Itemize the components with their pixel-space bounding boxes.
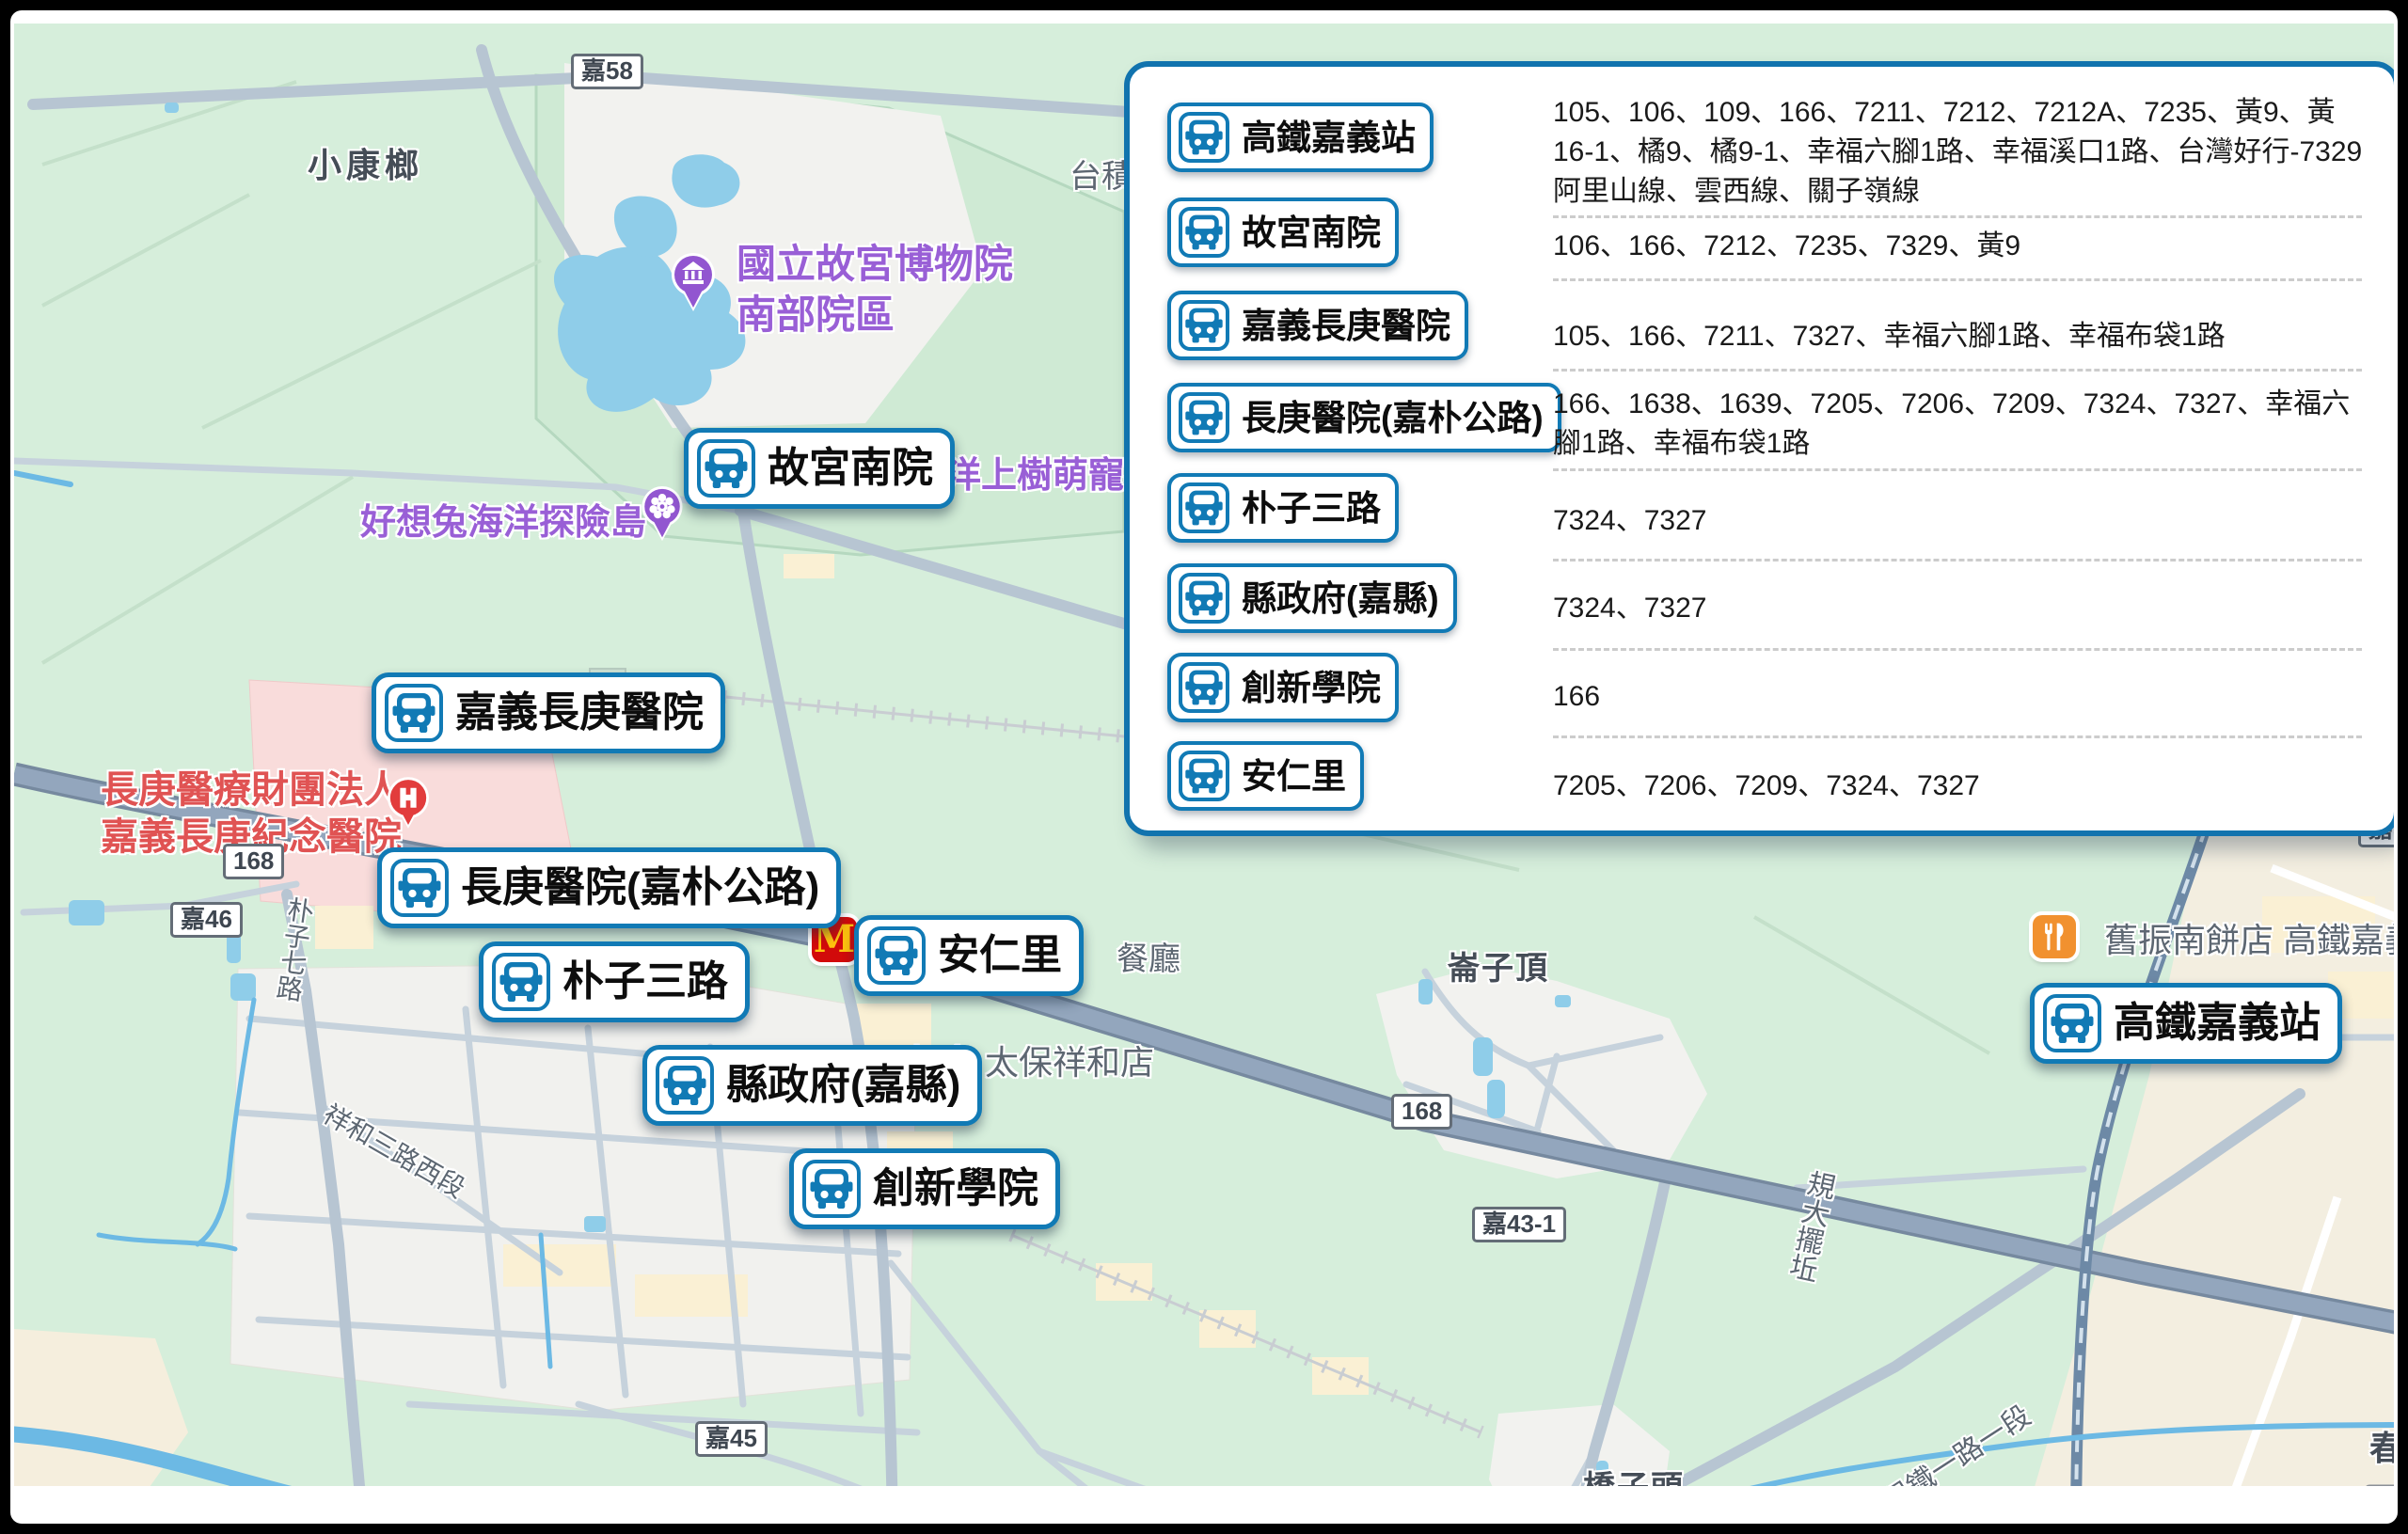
bus-icon — [656, 1056, 714, 1115]
locality-qiaozitou: 橋子頭 — [1583, 1468, 1685, 1486]
marker-label: 長庚醫院(嘉朴公路) — [461, 867, 819, 909]
map-marker-county-govt[interactable]: 縣政府(嘉縣) — [642, 1045, 982, 1126]
restaurant-icon[interactable] — [2033, 915, 2076, 958]
panel-routes-county-govt: 7324、7327 — [1553, 589, 2367, 628]
bus-icon — [390, 859, 449, 917]
panel-routes-anren-li: 7205、7206、7209、7324、7327 — [1553, 767, 2367, 806]
panel-routes-gugong: 106、166、7212、7235、7329、黃9 — [1553, 227, 2367, 266]
map-marker-chiayi-changgung[interactable]: 嘉義長庚醫院 — [372, 672, 725, 753]
panel-stop-chiayi-changgung[interactable]: 嘉義長庚醫院 — [1167, 291, 1468, 360]
bus-routes-panel: 高鐵嘉義站 105、106、109、166、7211、7212、7212A、72… — [1124, 61, 2394, 836]
attraction-pin-icon — [641, 486, 684, 543]
marker-label: 嘉義長庚醫院 — [455, 692, 704, 734]
map-marker-gugong-nanyuan[interactable]: 故宮南院 — [684, 428, 955, 509]
screenshot-frame: 小康榔 台積 國立故宮博物院 南部院區 好想兔海洋探險島 洋上樹萌寵樂園 長庚醫… — [0, 0, 2408, 1534]
panel-stop-label: 長庚醫院(嘉朴公路) — [1242, 401, 1544, 435]
map-marker-changgung-jiapu[interactable]: 長庚醫院(嘉朴公路) — [377, 847, 841, 928]
poi-bakery: 舊振南餅店 高鐵嘉義 — [2104, 919, 2394, 961]
separator — [1553, 735, 2362, 738]
panel-stop-label: 安仁里 — [1242, 759, 1346, 794]
locality-xiaokanglang: 小康榔 — [308, 144, 423, 186]
panel-stop-county-govt[interactable]: 縣政府(嘉縣) — [1167, 563, 1457, 633]
panel-stop-innovation-college[interactable]: 創新學院 — [1167, 653, 1399, 722]
panel-stop-label: 創新學院 — [1242, 671, 1381, 705]
bus-icon — [1179, 662, 1229, 713]
separator — [1553, 369, 2362, 372]
bus-icon — [1179, 112, 1229, 163]
shield-jia58: 嘉58 — [571, 54, 643, 89]
shield-168-b: 168 — [1391, 1094, 1452, 1130]
panel-stop-hsr-chiayi[interactable]: 高鐵嘉義站 — [1167, 103, 1434, 172]
map-marker-puzi-3rd-rd[interactable]: 朴子三路 — [479, 941, 750, 1022]
bus-icon — [697, 439, 755, 498]
marker-label: 安仁里 — [938, 935, 1062, 976]
poi-hospital-line1: 長庚醫療財團法人 — [101, 767, 402, 814]
museum-pin-icon — [671, 253, 716, 313]
panel-routes-changgung-jiapu: 166、1638、1639、7205、7206、7209、7324、7327、幸… — [1553, 385, 2367, 464]
poi-restaurant: 餐廳 — [1117, 940, 1180, 980]
separator — [1553, 278, 2362, 281]
locality-spring-partial: 春 — [2369, 1427, 2394, 1469]
hospital-pin-icon — [387, 776, 430, 830]
panel-routes-innovation-college: 166 — [1553, 677, 2367, 717]
bus-icon — [1179, 392, 1229, 443]
marker-label: 朴子三路 — [562, 961, 728, 1003]
panel-routes-puzi-3rd-rd: 7324、7327 — [1553, 501, 2367, 541]
bus-icon — [492, 953, 550, 1011]
shield-jia45: 嘉45 — [695, 1421, 768, 1457]
poi-museum-subtitle: 南部院區 — [737, 291, 895, 340]
marker-label: 高鐵嘉義站 — [2114, 1003, 2321, 1044]
bus-icon — [2043, 994, 2101, 1052]
map-canvas[interactable]: 小康榔 台積 國立故宮博物院 南部院區 好想兔海洋探險島 洋上樹萌寵樂園 長庚醫… — [14, 24, 2394, 1486]
map-marker-innovation-college[interactable]: 創新學院 — [789, 1148, 1060, 1229]
panel-stop-label: 嘉義長庚醫院 — [1242, 308, 1450, 343]
separator — [1553, 468, 2362, 471]
map-marker-anren-li[interactable]: 安仁里 — [854, 915, 1084, 996]
locality-lunziding: 崙子頂 — [1448, 949, 1549, 989]
separator — [1553, 648, 2362, 651]
map-marker-hsr-chiayi[interactable]: 高鐵嘉義站 — [2030, 983, 2342, 1064]
panel-stop-label: 縣政府(嘉縣) — [1242, 581, 1439, 616]
panel-stop-changgung-jiapu[interactable]: 長庚醫院(嘉朴公路) — [1167, 383, 1561, 452]
marker-label: 縣政府(嘉縣) — [726, 1065, 960, 1106]
marker-label: 創新學院 — [873, 1168, 1038, 1210]
shield-jia43-1: 嘉43-1 — [1472, 1207, 1566, 1242]
marker-label: 故宮南院 — [768, 448, 933, 489]
bus-icon — [802, 1160, 861, 1218]
fork-knife-icon — [2037, 920, 2071, 954]
panel-routes-chiayi-changgung: 105、166、7211、7327、幸福六腳1路、幸福布袋1路 — [1553, 317, 2367, 356]
bus-icon — [867, 926, 926, 985]
separator — [1553, 215, 2362, 218]
poi-rabbit-island: 好想兔海洋探險島 — [360, 501, 646, 546]
shield-168-a: 168 — [223, 844, 284, 879]
panel-stop-label: 朴子三路 — [1242, 491, 1381, 526]
bus-icon — [385, 684, 443, 742]
bus-icon — [1179, 482, 1229, 533]
panel-stop-gugong[interactable]: 故宮南院 — [1167, 198, 1399, 267]
bus-icon — [1179, 300, 1229, 351]
separator — [1553, 559, 2362, 561]
panel-stop-label: 高鐵嘉義站 — [1242, 120, 1416, 155]
panel-routes-hsr-chiayi: 105、106、109、166、7211、7212、7212A、7235、黃9、… — [1553, 93, 2367, 212]
poi-museum-title: 國立故宮博物院 — [737, 240, 1013, 290]
bus-icon — [1179, 207, 1229, 258]
page: 小康榔 台積 國立故宮博物院 南部院區 好想兔海洋探險島 洋上樹萌寵樂園 長庚醫… — [10, 10, 2398, 1524]
panel-stop-puzi-3rd-rd[interactable]: 朴子三路 — [1167, 473, 1399, 543]
shield-jia46: 嘉46 — [170, 902, 243, 938]
bus-icon — [1179, 573, 1229, 624]
panel-stop-anren-li[interactable]: 安仁里 — [1167, 741, 1364, 811]
bus-icon — [1179, 751, 1229, 801]
panel-stop-label: 故宮南院 — [1242, 215, 1381, 250]
